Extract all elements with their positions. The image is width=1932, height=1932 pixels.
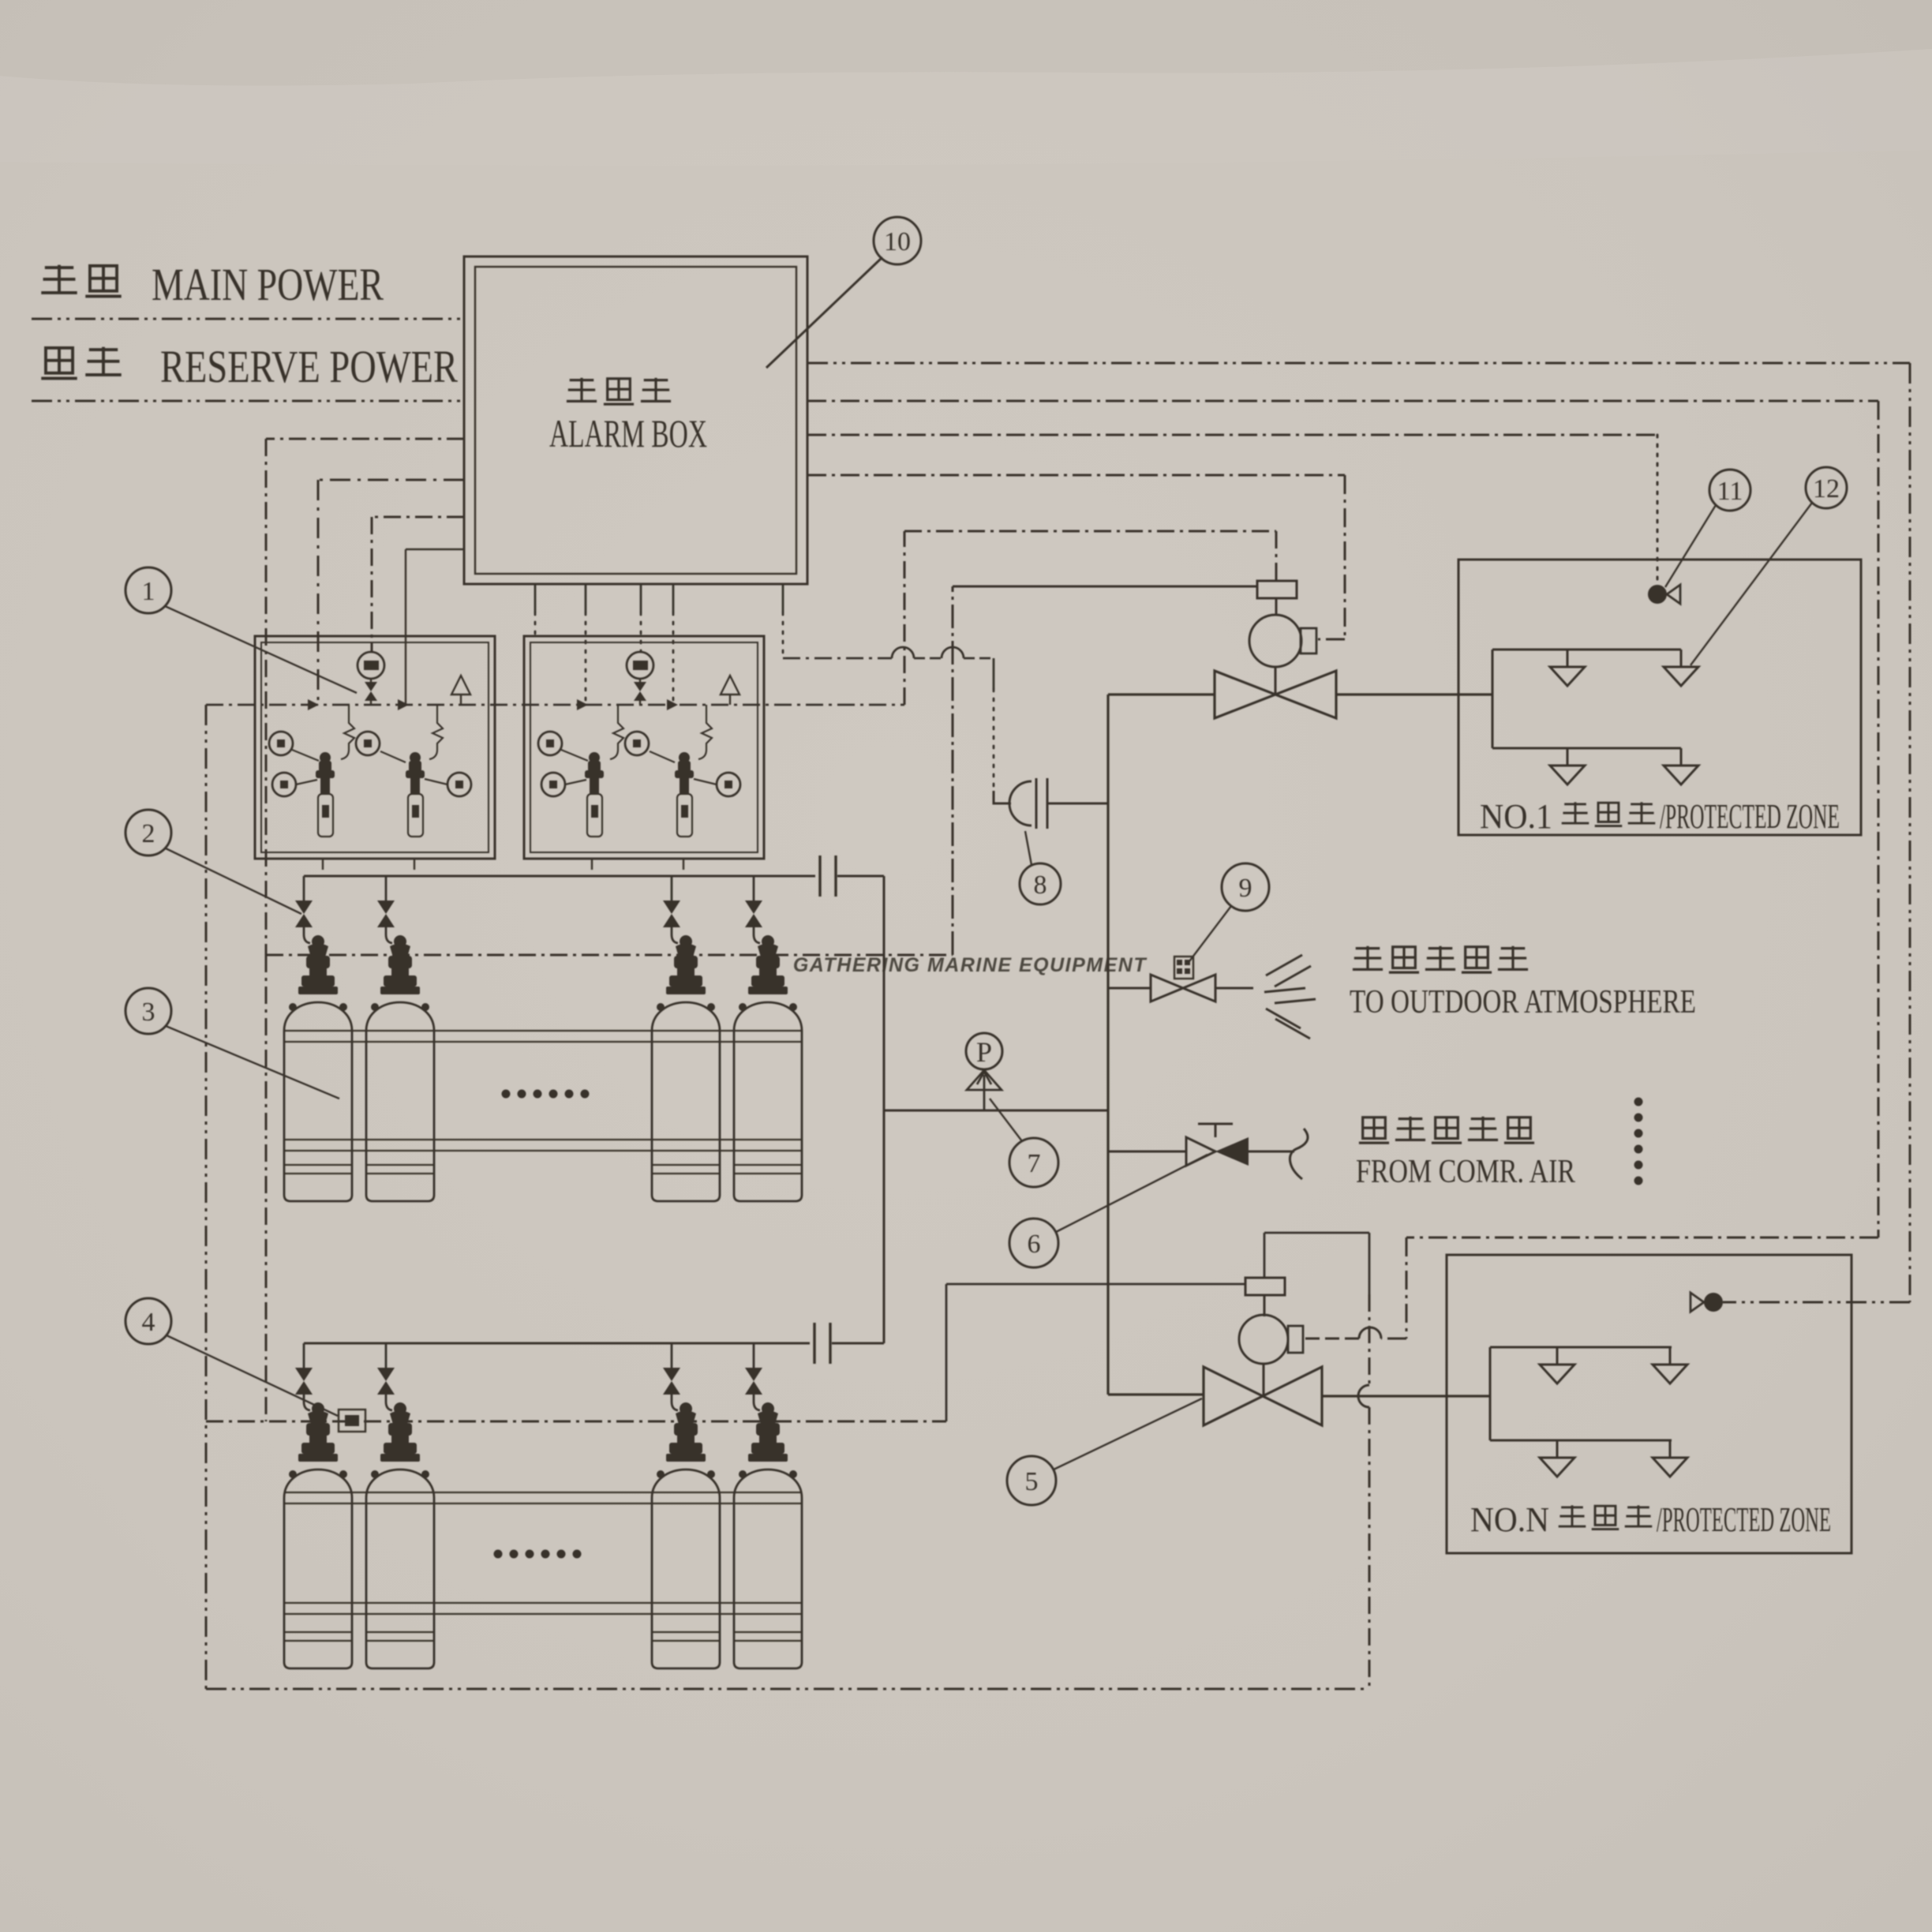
svg-text:TO OUTDOOR ATMOSPHERE: TO OUTDOOR ATMOSPHERE bbox=[1350, 984, 1696, 1020]
svg-text:10: 10 bbox=[884, 227, 911, 256]
svg-text:12: 12 bbox=[1813, 474, 1840, 504]
svg-text:1: 1 bbox=[142, 577, 155, 606]
svg-text:8: 8 bbox=[1034, 871, 1047, 900]
svg-text:RESERVE POWER: RESERVE POWER bbox=[160, 341, 458, 392]
svg-text:/PROTECTED ZONE: /PROTECTED ZONE bbox=[1660, 797, 1840, 836]
svg-text:FROM COMR. AIR: FROM COMR. AIR bbox=[1356, 1154, 1575, 1190]
svg-text:P: P bbox=[976, 1036, 992, 1068]
svg-text:NO.1: NO.1 bbox=[1480, 797, 1552, 836]
svg-text:9: 9 bbox=[1239, 874, 1252, 903]
svg-text:3: 3 bbox=[142, 998, 155, 1027]
svg-text:4: 4 bbox=[142, 1308, 155, 1337]
svg-text:7: 7 bbox=[1028, 1149, 1041, 1178]
svg-text:5: 5 bbox=[1025, 1467, 1039, 1496]
svg-text:ALARM BOX: ALARM BOX bbox=[549, 411, 707, 455]
svg-text:MAIN POWER: MAIN POWER bbox=[152, 259, 384, 310]
svg-text:6: 6 bbox=[1028, 1230, 1041, 1259]
svg-text:GATHERING MARINE EQUIPMENT: GATHERING MARINE EQUIPMENT bbox=[793, 954, 1148, 976]
svg-text:NO.N: NO.N bbox=[1470, 1500, 1549, 1539]
svg-text:/PROTECTED ZONE: /PROTECTED ZONE bbox=[1657, 1500, 1831, 1539]
svg-text:11: 11 bbox=[1717, 477, 1743, 506]
svg-text:2: 2 bbox=[142, 819, 155, 848]
